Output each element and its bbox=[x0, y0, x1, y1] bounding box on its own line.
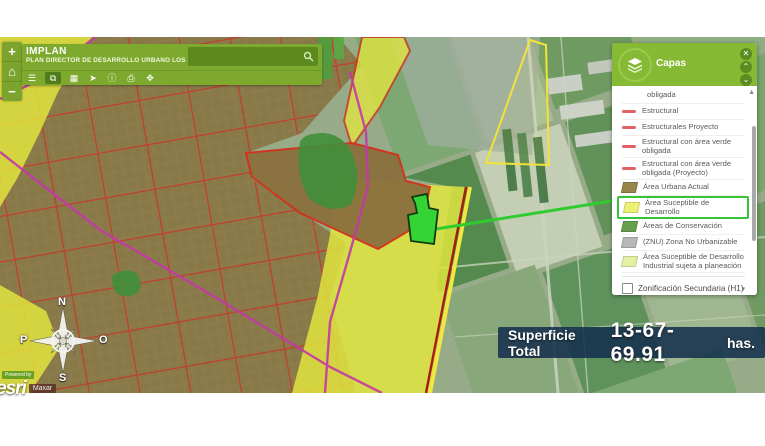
layer-label: (ZNU) Zona No Urbanizable bbox=[643, 238, 738, 247]
layer-label: obligada bbox=[647, 91, 676, 100]
compass-west-label: P bbox=[20, 334, 27, 346]
header-toolbar: ☰⧉▦➤ⓘ⎙✥ bbox=[22, 70, 322, 85]
zoom-out-button[interactable]: − bbox=[2, 82, 22, 101]
measurement-value: 13-67-69.91 bbox=[611, 319, 721, 367]
close-icon[interactable]: ✕ bbox=[740, 48, 752, 60]
chevron-up-icon[interactable]: ⌃ bbox=[740, 61, 752, 73]
panel-scrollbar[interactable] bbox=[752, 126, 756, 241]
zoom-in-button[interactable]: + bbox=[2, 42, 22, 62]
compass-east-label: O bbox=[99, 334, 108, 346]
layers-icon[interactable]: ⧉ bbox=[45, 72, 61, 84]
fill-swatch bbox=[621, 221, 638, 232]
layers-stack-icon bbox=[618, 48, 652, 82]
layer-label: Estructural con área verde obligada bbox=[642, 138, 745, 155]
measure-icon[interactable]: ➤ bbox=[87, 72, 99, 84]
fill-swatch bbox=[623, 202, 640, 213]
line-swatch bbox=[622, 126, 636, 129]
fill-swatch bbox=[621, 237, 638, 248]
info-icon[interactable]: ⓘ bbox=[106, 72, 118, 84]
legend-icon[interactable]: ☰ bbox=[26, 72, 38, 84]
layer-label: Estructurales Proyecto bbox=[642, 123, 718, 132]
search-input[interactable] bbox=[188, 52, 303, 61]
layer-row-zonificacion: Zonificación Secundaria (H1) ▾ bbox=[622, 276, 745, 295]
measurement-label: Superficie Total bbox=[508, 327, 605, 359]
layers-panel-header: Capas ✕ ⌃ ⌄ bbox=[612, 43, 757, 86]
compass-south-label: S bbox=[59, 372, 66, 384]
layer-row[interactable]: Estructurales Proyecto bbox=[622, 120, 745, 136]
home-button[interactable]: ⌂ bbox=[2, 62, 22, 82]
fill-swatch bbox=[621, 182, 638, 193]
measurement-unit: has. bbox=[727, 335, 755, 351]
pan-icon[interactable]: ✥ bbox=[144, 72, 156, 84]
layer-row[interactable]: Estructural bbox=[622, 104, 745, 120]
app-window: + ⌂ − IMPLAN PLAN DIRECTOR DE DESARROLLO… bbox=[0, 0, 765, 446]
layer-label: Área Suceptible de Desarrollo bbox=[645, 199, 743, 216]
layer-row[interactable]: Áreas de Conservación bbox=[622, 219, 745, 235]
layer-label: Estructural con área verde obligada (Pro… bbox=[642, 160, 745, 177]
layer-checkbox[interactable] bbox=[622, 283, 633, 294]
provider-label: Maxar bbox=[29, 384, 56, 393]
layer-row[interactable]: Estructural con área verde obligada (Pro… bbox=[622, 158, 745, 180]
measurement-result: Superficie Total 13-67-69.91 has. bbox=[498, 327, 765, 358]
layer-row[interactable]: (ZNU) Zona No Urbanizable bbox=[622, 235, 745, 251]
layer-row[interactable]: Estructural con área verde obligada bbox=[622, 136, 745, 158]
line-swatch bbox=[622, 167, 636, 170]
layer-row[interactable]: Área Suceptible de Desarrollo Industrial… bbox=[622, 251, 745, 273]
line-swatch bbox=[622, 145, 636, 148]
map-zoom-control: + ⌂ − bbox=[2, 42, 22, 101]
fill-swatch bbox=[621, 256, 638, 267]
layer-label: Áreas de Conservación bbox=[643, 222, 722, 231]
line-swatch bbox=[622, 110, 636, 113]
layer-row[interactable]: obligada bbox=[622, 88, 745, 104]
layer-row-selected[interactable]: Área Suceptible de Desarrollo bbox=[617, 196, 749, 219]
scroll-up-icon[interactable]: ▲ bbox=[748, 89, 755, 96]
print-icon[interactable]: ⎙ bbox=[125, 72, 137, 84]
layer-row[interactable]: Área Urbana Actual bbox=[622, 180, 745, 196]
layer-label: Área Urbana Actual bbox=[643, 183, 709, 192]
map-attribution: Powered by esriMaxar bbox=[0, 363, 56, 399]
chevron-down-icon[interactable]: ⌄ bbox=[740, 74, 752, 86]
search-icon[interactable] bbox=[303, 51, 314, 62]
search-box[interactable] bbox=[188, 47, 318, 66]
layers-list: ▲ obligadaEstructuralEstructurales Proye… bbox=[612, 86, 757, 295]
app-header: IMPLAN PLAN DIRECTOR DE DESARROLLO URBAN… bbox=[22, 44, 322, 85]
layer-label: Zonificación Secundaria (H1) bbox=[638, 284, 744, 293]
layer-label: Área Suceptible de Desarrollo Industrial… bbox=[643, 253, 745, 270]
layers-panel-title: Capas bbox=[656, 58, 686, 69]
compass-north-label: N bbox=[58, 296, 66, 308]
esri-logo: esri bbox=[0, 378, 26, 399]
layer-label: Estructural bbox=[642, 107, 678, 116]
basemap-icon[interactable]: ▦ bbox=[68, 72, 80, 84]
header-titles: IMPLAN PLAN DIRECTOR DE DESARROLLO URBAN… bbox=[22, 44, 322, 70]
layers-panel: Capas ✕ ⌃ ⌄ ▲ obligadaEstructuralEstruct… bbox=[612, 43, 757, 295]
dropdown-arrow-icon[interactable]: ▾ bbox=[741, 285, 745, 293]
